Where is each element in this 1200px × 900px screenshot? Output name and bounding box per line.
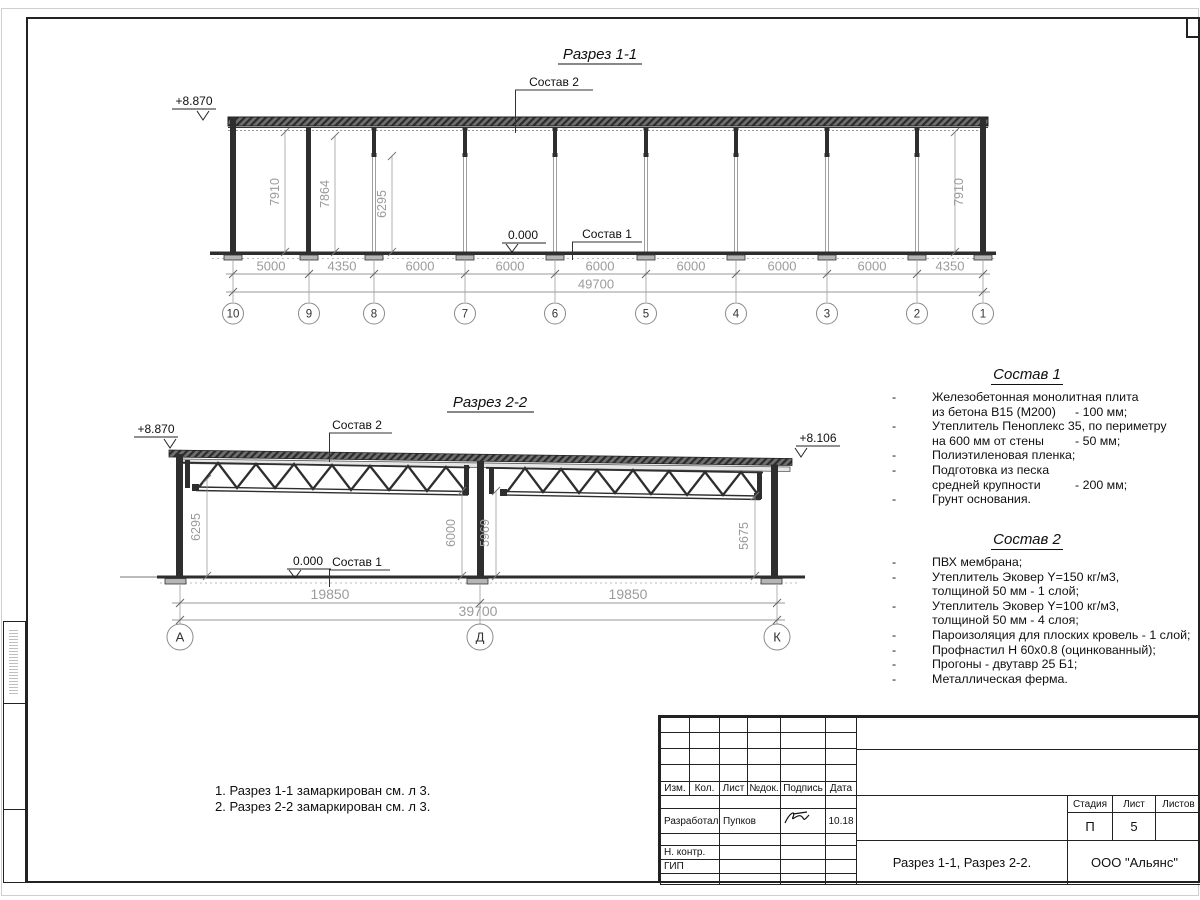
callout-sostav1-s2: Состав 1: [332, 555, 382, 569]
notes-block: 1. Разрез 1-1 замаркирован см. л 3. 2. Р…: [215, 783, 430, 814]
rev-cell: [689, 732, 720, 749]
list-item: средней крупности- 200 мм;: [877, 478, 1177, 493]
sig-cell: [660, 795, 720, 809]
level-mark-icon: [164, 439, 176, 448]
empty-cell: [856, 795, 1068, 841]
designation-cell: [856, 749, 1200, 796]
rev-cell: [689, 764, 720, 782]
callout-sostav2-s1: Состав 2: [529, 75, 579, 89]
rev-cell: [660, 717, 690, 733]
level-mark-icon: [197, 111, 209, 120]
rev-header-doc: №док.: [747, 781, 781, 796]
level-zero-1: 0.000: [508, 228, 538, 242]
column: [230, 117, 236, 253]
height-dim: 7910: [268, 178, 282, 206]
rev-cell: [780, 748, 826, 765]
axis-label: 4: [733, 309, 740, 321]
span-dim: 6000: [406, 259, 435, 274]
sig-cell: [825, 795, 857, 809]
floor-line-2: [157, 576, 805, 579]
list-item: -Утеплитель Эковер Y=100 кг/м3,: [877, 599, 1177, 614]
list-item: -Железобетонная монолитная плита: [877, 390, 1177, 405]
list-item: на 600 мм от стены- 50 мм;: [877, 434, 1177, 449]
level-top-left: +8.870: [137, 422, 174, 436]
sheet-value: 5: [1112, 812, 1156, 841]
height-dim: 6295: [189, 513, 203, 541]
rev-cell: [747, 764, 781, 782]
column: [980, 117, 986, 253]
sig-cell: [719, 859, 781, 874]
sheets-header: Листов: [1155, 795, 1200, 813]
axis-label: 1: [980, 309, 986, 321]
column-K: [771, 465, 778, 579]
height-dim: 7910: [952, 178, 966, 206]
roof-slab: [228, 117, 988, 126]
rev-cell: [689, 748, 720, 765]
list-item: -Полиэтиленовая пленка;: [877, 448, 1177, 463]
column-A: [176, 454, 183, 578]
height-dim: 5969: [478, 519, 492, 547]
company-name: ООО "Альянс": [1067, 840, 1200, 885]
sostav2-block: Состав 2 -ПВХ мембрана; -Утеплитель Эков…: [877, 531, 1177, 686]
height-dim: 6000: [444, 519, 458, 547]
stage-value: П: [1067, 812, 1113, 841]
span-dim: 19850: [311, 586, 350, 602]
axis-label: К: [773, 630, 781, 645]
rev-cell: [660, 732, 690, 749]
axis-label: 9: [306, 309, 312, 321]
axis-label: 6: [552, 309, 558, 321]
list-item: -ПВХ мембрана;: [877, 555, 1177, 570]
height-dim: 7864: [318, 180, 332, 208]
span-dim: 4350: [328, 259, 357, 274]
rev-cell: [719, 717, 748, 733]
callout-sostav1-s1: Состав 1: [582, 227, 632, 241]
sig-cell: [719, 845, 781, 860]
section1-title: Разрез 1-1: [563, 46, 637, 63]
level-mark-icon: [795, 448, 807, 457]
note-line: 2. Разрез 2-2 замаркирован см. л 3.: [215, 799, 430, 815]
rev-cell: [780, 732, 826, 749]
sig-cell: [719, 873, 781, 885]
developed-date: 10.18: [825, 808, 857, 834]
list-item: -Металлическая ферма.: [877, 672, 1177, 687]
list-item: -Профнастил Н 60х0.8 (оцинкованный);: [877, 643, 1177, 658]
developed-name: Пупков: [719, 808, 781, 834]
list-item: толщиной 50 мм - 1 слой;: [877, 584, 1177, 599]
callout-leader: [572, 242, 642, 260]
sheet-header: Лист: [1112, 795, 1156, 813]
rev-cell: [825, 764, 857, 782]
note-line: 1. Разрез 1-1 замаркирован см. л 3.: [215, 783, 430, 799]
rev-cell: [825, 717, 857, 733]
column: [306, 127, 311, 253]
sig-cell: [719, 795, 781, 809]
rev-cell: [660, 748, 690, 765]
rev-header-kol: Кол.: [689, 781, 720, 796]
doc-title: Разрез 1-1, Разрез 2-2.: [856, 840, 1068, 885]
level-zero-2: 0.000: [293, 554, 323, 568]
truss-span-2: [486, 468, 763, 500]
rev-header-date: Дата: [825, 781, 857, 796]
span-dim: 19850: [609, 586, 648, 602]
list-item: -Грунт основания.: [877, 492, 1177, 507]
designation-cell: [856, 717, 1200, 750]
axis-label: 7: [462, 309, 468, 321]
span-dim: 6000: [677, 259, 706, 274]
sig-cell: [780, 873, 826, 885]
rev-header-list: Лист: [719, 781, 748, 796]
axis-label: 5: [643, 309, 649, 321]
sig-cell: [780, 795, 826, 809]
rev-cell: [719, 764, 748, 782]
axis-label: 2: [914, 309, 920, 321]
axis-label: А: [176, 630, 185, 645]
list-item: -Подготовка из песка: [877, 463, 1177, 478]
sig-cell: [825, 859, 857, 874]
axis-bubbles-s1: 10 9 8 7 6 5 4 3 2 1: [223, 303, 994, 324]
axis-bubbles-s2: А Д К: [167, 624, 790, 650]
sig-cell: [825, 873, 857, 885]
rev-cell: [660, 764, 690, 782]
span-dim: 6000: [858, 259, 887, 274]
span-dim: 6000: [586, 259, 615, 274]
rev-cell: [780, 764, 826, 782]
list-item: -Прогоны - двутавр 25 Б1;: [877, 657, 1177, 672]
developed-label: Разработал: [660, 808, 720, 834]
span-dim: 5000: [257, 259, 286, 274]
span-dim: 4350: [936, 259, 965, 274]
intermediate-columns: [372, 127, 920, 253]
rev-cell: [747, 748, 781, 765]
list-item: толщиной 50 мм - 4 слоя;: [877, 613, 1177, 628]
sig-cell: [780, 859, 826, 874]
stage-header: Стадия: [1067, 795, 1113, 813]
total-dim: 39700: [459, 603, 498, 619]
drawing-sheet: Разрез 1-1: [0, 0, 1200, 900]
signature-icon: [781, 809, 819, 827]
span-dim: 6000: [496, 259, 525, 274]
rev-cell: [719, 732, 748, 749]
level-top-right: +8.106: [799, 431, 836, 445]
sostav1-title: Состав 1: [877, 366, 1177, 383]
section-2-2: Разрез 2-2: [120, 394, 840, 650]
sostav2-title: Состав 2: [877, 531, 1177, 548]
axis-label: Д: [476, 630, 485, 645]
rev-cell: [719, 748, 748, 765]
developed-signature: [780, 808, 826, 834]
rev-cell: [689, 717, 720, 733]
sig-cell: [825, 845, 857, 860]
ncontrol-label: Н. контр.: [660, 845, 720, 860]
title-block: Изм. Кол. Лист №док. Подпись Дата Разраб…: [658, 715, 1200, 883]
total-dim: 49700: [578, 277, 614, 292]
list-item: -Утеплитель Пеноплекс 35, по периметру: [877, 419, 1177, 434]
floor-line: [210, 252, 996, 256]
span-dim: 6000: [768, 259, 797, 274]
list-item: -Утеплитель Эковер Y=150 кг/м3,: [877, 570, 1177, 585]
rev-cell: [747, 732, 781, 749]
rev-cell: [747, 717, 781, 733]
axis-label: 8: [371, 309, 377, 321]
list-item: -Пароизоляция для плоских кровель - 1 сл…: [877, 628, 1177, 643]
level-top-1: +8.870: [175, 94, 212, 108]
rev-header-sign: Подпись: [780, 781, 826, 796]
callout-leader: [515, 90, 593, 133]
section-1-1: Разрез 1-1: [172, 46, 996, 324]
sig-cell: [660, 873, 720, 885]
level-mark-icon: [506, 244, 518, 252]
rev-cell: [780, 717, 826, 733]
rev-cell: [825, 748, 857, 765]
height-dim: 6295: [375, 190, 389, 218]
section2-title: Разрез 2-2: [453, 394, 528, 411]
axis-label: 10: [227, 309, 240, 321]
rev-cell: [825, 732, 857, 749]
callout-sostav2-s2: Состав 2: [332, 418, 382, 432]
axis-label: 3: [824, 309, 830, 321]
sig-cell: [780, 845, 826, 860]
list-item: из бетона В15 (М200)- 100 мм;: [877, 405, 1177, 420]
base-plates-2: [165, 579, 782, 585]
gip-label: ГИП: [660, 859, 720, 874]
sostav1-block: Состав 1 -Железобетонная монолитная плит…: [877, 366, 1177, 507]
rev-header-izm: Изм.: [660, 781, 690, 796]
height-dim: 5675: [737, 522, 751, 550]
sheets-value: [1155, 812, 1200, 841]
